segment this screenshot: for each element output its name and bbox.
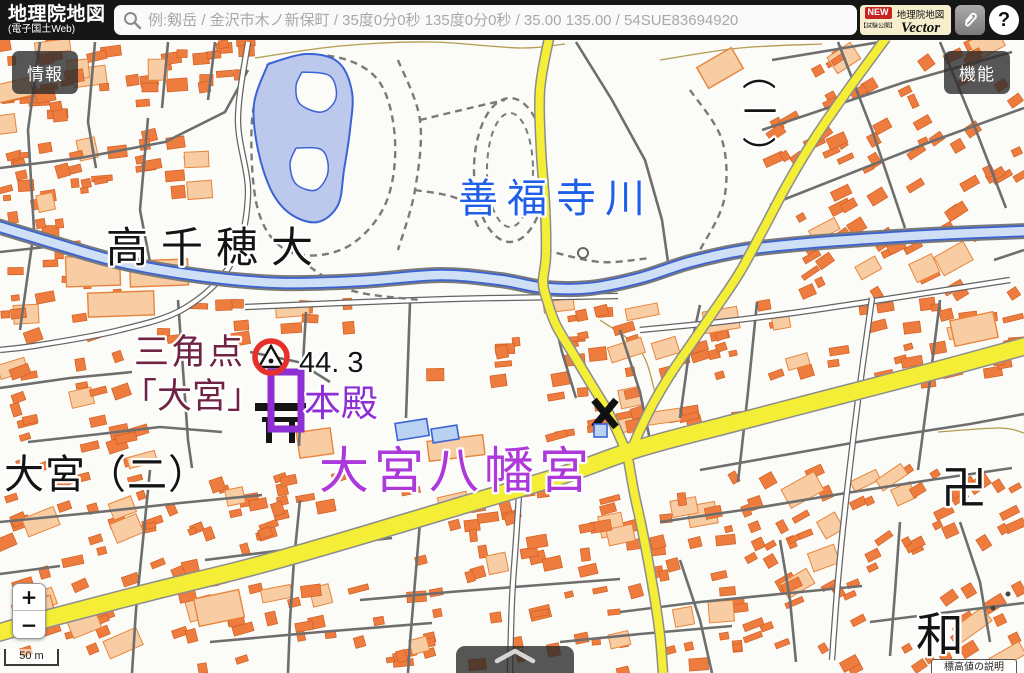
vector-name: Vector xyxy=(901,21,940,36)
paperclip-icon xyxy=(961,11,979,29)
help-button[interactable]: ? xyxy=(989,5,1019,35)
temple-manji-icon: 卍 xyxy=(941,462,987,514)
zoom-in-button[interactable]: + xyxy=(13,584,45,611)
vector-product: 地理院地図 xyxy=(897,7,945,21)
chome-close-paren: ） xyxy=(738,136,776,170)
new-badge: NEW xyxy=(865,7,892,19)
label-triangulation-1: 三角点 xyxy=(134,333,245,372)
zoom-control: + − xyxy=(12,583,46,639)
app-title: 地理院地図 xyxy=(8,5,114,25)
label-triangulation-2: 「大宮」 xyxy=(122,377,262,416)
vector-badge-right: 地理院地図 Vector xyxy=(893,7,948,33)
app-subtitle: (電子国土Web) xyxy=(8,25,114,36)
header-bar: 地理院地図 (電子国土Web) NEW 【試験公開】 地理院地図 Vector xyxy=(0,0,1024,40)
map-canvas[interactable]: 高千穂大 善福寺川 三角点 「大宮」 44. 3 本殿 大宮八幡宮 大宮（二） … xyxy=(0,0,1024,673)
vector-badge-left: NEW 【試験公開】 xyxy=(863,7,893,33)
function-panel-button[interactable]: 機能 xyxy=(944,51,1010,94)
trial-note: 【試験公開】 xyxy=(860,22,896,31)
chome-number: 一 xyxy=(743,94,777,132)
zoom-out-button[interactable]: − xyxy=(13,611,45,638)
info-panel-button[interactable]: 情報 xyxy=(12,51,78,94)
chome-open-paren: （ xyxy=(738,56,776,90)
search-input[interactable] xyxy=(114,5,857,35)
scale-bar: 50 m xyxy=(4,649,59,666)
label-omiya-hachimangu: 大宮八幡宮 xyxy=(319,443,594,499)
app-logo[interactable]: 地理院地図 (電子国土Web) xyxy=(0,5,114,35)
label-wada: 和 xyxy=(916,610,964,663)
label-zenpukuji-river: 善福寺川 xyxy=(458,177,654,221)
share-link-button[interactable] xyxy=(955,5,985,35)
gsi-map-app: 高千穂大 善福寺川 三角点 「大宮」 44. 3 本殿 大宮八幡宮 大宮（二） … xyxy=(0,0,1024,673)
chevron-up-icon xyxy=(489,646,541,666)
vector-badge[interactable]: NEW 【試験公開】 地理院地図 Vector xyxy=(860,5,951,35)
label-omiya-2chome: 大宮（二） xyxy=(4,453,209,497)
label-takachiho-univ: 高千穂大 xyxy=(106,224,326,271)
footer-expand-button[interactable] xyxy=(456,646,574,673)
search-box xyxy=(114,5,857,35)
label-chome-vertical: （ 一 ） xyxy=(738,56,777,170)
elevation-note-button[interactable]: 標高値の説明 xyxy=(931,659,1017,673)
label-spot-elevation: 44. 3 xyxy=(299,347,364,379)
search-icon xyxy=(122,10,142,30)
label-honden: 本殿 xyxy=(304,383,378,424)
triangulation-dot xyxy=(269,359,274,364)
